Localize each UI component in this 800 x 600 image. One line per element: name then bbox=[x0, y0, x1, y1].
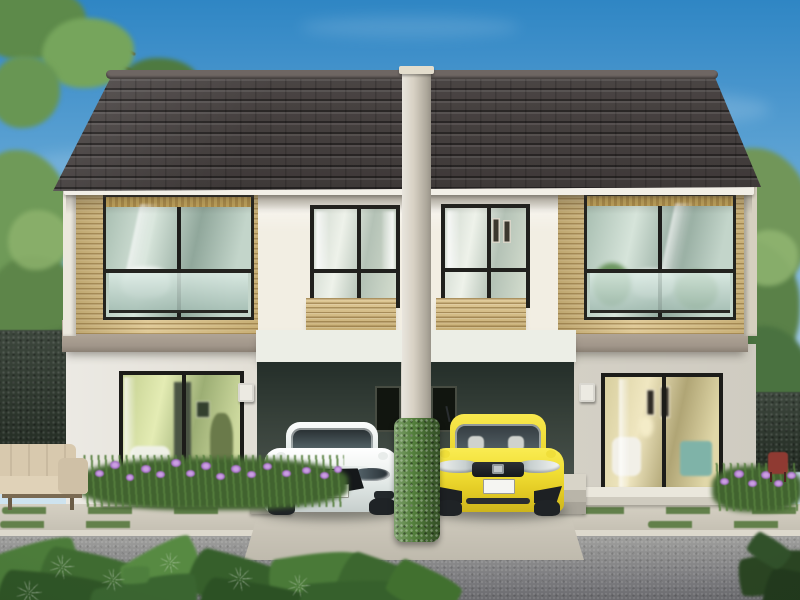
curtain bbox=[447, 210, 459, 270]
yellow-car-headlight bbox=[518, 460, 560, 473]
interior-tv bbox=[196, 401, 210, 418]
window-mullion bbox=[445, 268, 526, 272]
chair-leg bbox=[770, 472, 772, 482]
window-mullion bbox=[357, 209, 361, 304]
honda-badge bbox=[492, 464, 504, 474]
sliding-glass-door-right-unit bbox=[601, 373, 723, 496]
white-spider-flower bbox=[158, 552, 182, 574]
purple-flower bbox=[201, 462, 211, 470]
purple-flower bbox=[263, 463, 272, 470]
sofa-leg bbox=[8, 498, 12, 510]
yellow-car-mirror bbox=[546, 450, 556, 458]
white-car-wheel bbox=[369, 498, 396, 515]
white-car-headlight bbox=[356, 468, 390, 481]
curtain bbox=[316, 211, 328, 270]
doorbell-panel-left bbox=[238, 383, 254, 402]
purple-flower bbox=[320, 472, 329, 479]
slat-sill-panel-left bbox=[306, 298, 396, 330]
purple-flower bbox=[186, 470, 195, 477]
picture-frame bbox=[503, 220, 511, 243]
yellow-car-mirror bbox=[440, 450, 450, 458]
purple-flower bbox=[787, 472, 796, 479]
purple-flower bbox=[247, 471, 256, 478]
purple-flower bbox=[126, 474, 134, 481]
carport-header-right bbox=[429, 330, 576, 362]
interior-cabinet bbox=[680, 441, 712, 476]
purple-flower bbox=[282, 470, 291, 477]
purple-flower bbox=[302, 467, 311, 474]
hedge-column bbox=[394, 418, 440, 542]
glass-balustrade bbox=[109, 273, 248, 313]
purple-flower bbox=[156, 471, 165, 478]
outdoor-sofa-armrest bbox=[58, 458, 88, 494]
slat-sill-panel-right bbox=[436, 298, 526, 330]
townhouse-exterior-scene bbox=[0, 0, 800, 600]
purple-flower bbox=[720, 478, 729, 485]
white-spider-flower bbox=[286, 574, 312, 598]
cloud bbox=[300, 16, 520, 38]
white-spider-flower bbox=[14, 580, 44, 600]
purple-flower bbox=[95, 470, 104, 477]
purple-flower bbox=[748, 480, 757, 487]
grass-blades bbox=[82, 455, 344, 507]
door-mullion bbox=[662, 377, 666, 492]
upper-window-right-unit bbox=[441, 204, 530, 308]
white-spider-flower bbox=[226, 566, 254, 592]
party-wall-cap bbox=[399, 66, 434, 74]
yellow-car-license-plate bbox=[483, 479, 515, 494]
carport-header-left bbox=[256, 330, 403, 362]
grass-strip bbox=[648, 521, 800, 528]
curtain bbox=[382, 211, 394, 270]
purple-flower bbox=[216, 473, 225, 480]
purple-flower bbox=[141, 465, 151, 473]
glass-reflection bbox=[619, 379, 630, 489]
doorbell-panel-right bbox=[579, 383, 595, 402]
purple-flower bbox=[334, 466, 342, 473]
upper-window-left-unit bbox=[310, 205, 400, 308]
purple-flower bbox=[231, 465, 241, 473]
glass-balustrade bbox=[590, 273, 730, 314]
interior-lamp bbox=[639, 416, 653, 437]
picture-frame bbox=[492, 218, 500, 243]
chair-leg bbox=[784, 472, 786, 482]
entry-step-right bbox=[584, 487, 733, 505]
window-mullion bbox=[487, 208, 491, 304]
purple-flower bbox=[110, 461, 120, 469]
window-mullion bbox=[314, 269, 396, 273]
white-car-mirror bbox=[378, 452, 388, 460]
white-spider-flower bbox=[48, 554, 76, 580]
bumper-lip bbox=[466, 498, 530, 504]
picture-frame bbox=[646, 389, 655, 417]
white-spider-flower bbox=[100, 568, 126, 592]
yellow-car-wheel bbox=[534, 500, 560, 516]
grass-strip bbox=[0, 521, 140, 528]
red-garden-chair bbox=[768, 452, 788, 474]
sofa-leg bbox=[70, 498, 74, 510]
purple-flower bbox=[774, 480, 783, 487]
purple-flower bbox=[171, 459, 181, 467]
purple-flower bbox=[734, 470, 744, 478]
